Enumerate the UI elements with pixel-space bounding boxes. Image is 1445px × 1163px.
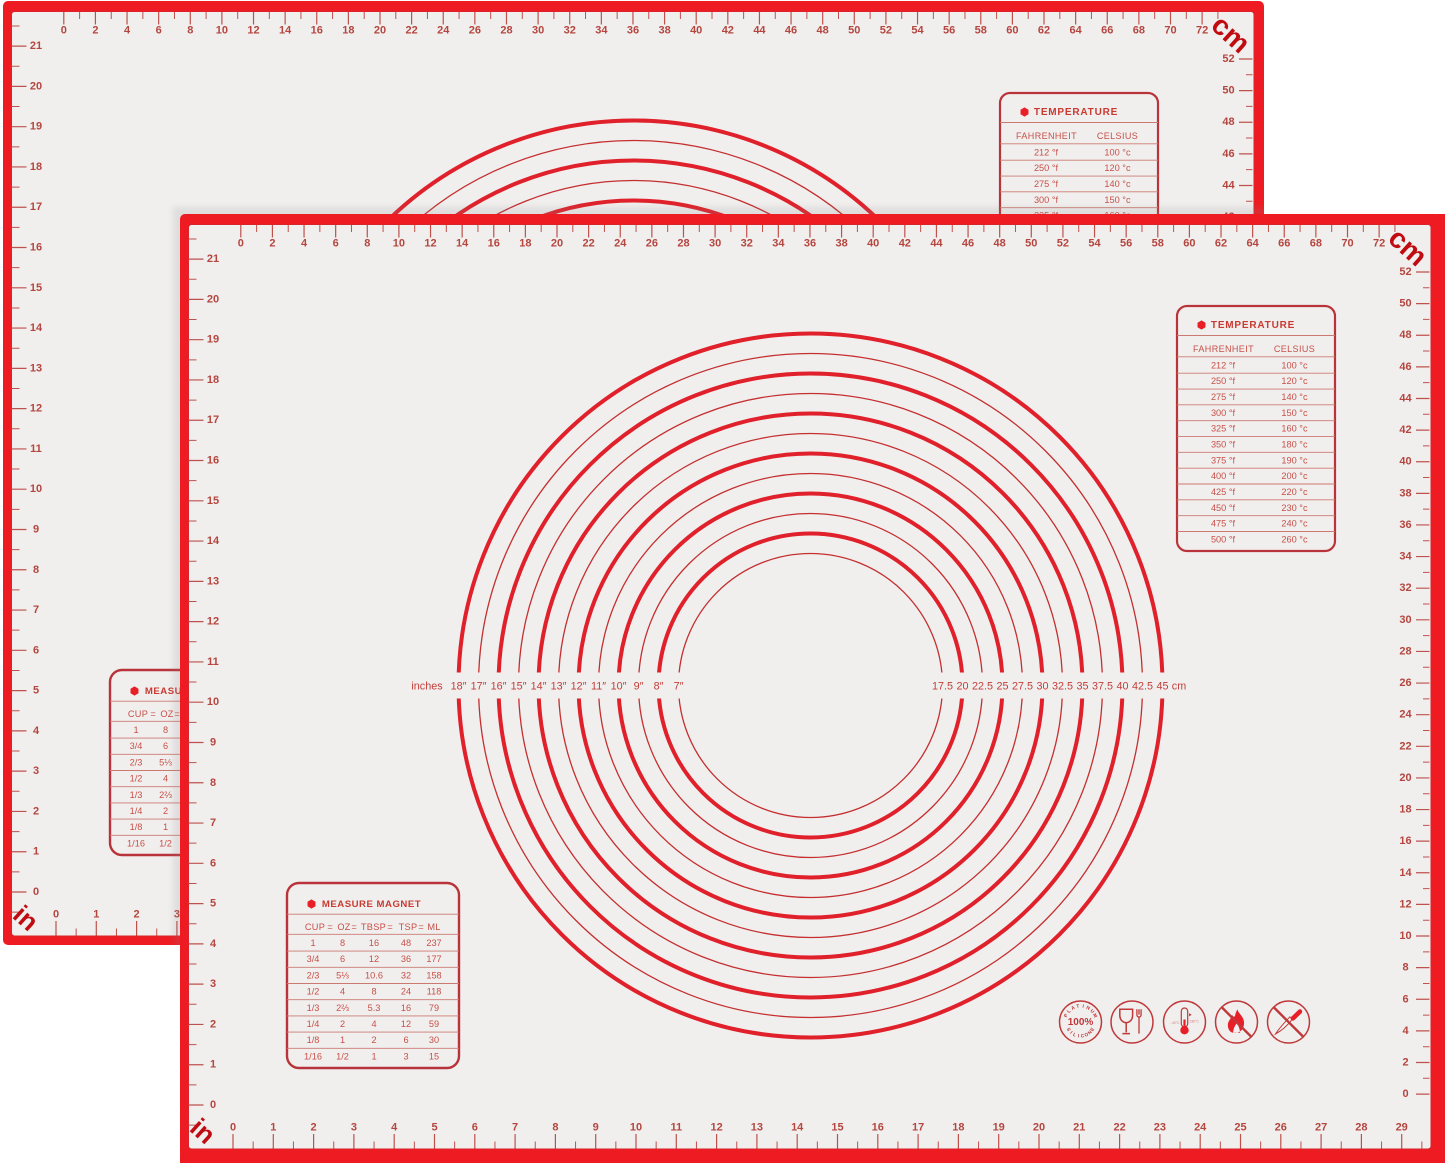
svg-text:37.5: 37.5 — [1092, 681, 1113, 693]
svg-text:5: 5 — [33, 685, 39, 697]
svg-text:62: 62 — [1038, 25, 1050, 37]
svg-text:28: 28 — [1399, 645, 1411, 657]
svg-text:64: 64 — [1247, 238, 1260, 250]
svg-text:52: 52 — [1057, 238, 1069, 250]
svg-text:66: 66 — [1101, 25, 1113, 37]
svg-text:230°C: 230°C — [1190, 1020, 1200, 1024]
svg-text:12: 12 — [1399, 898, 1411, 910]
svg-text:32: 32 — [1399, 582, 1411, 594]
svg-text:6: 6 — [1402, 993, 1408, 1005]
svg-text:42.5: 42.5 — [1132, 681, 1153, 693]
svg-text:27.5: 27.5 — [1012, 681, 1033, 693]
svg-text:2/3: 2/3 — [130, 757, 143, 767]
svg-text:15: 15 — [429, 1051, 439, 1061]
svg-text:180 °c: 180 °c — [1281, 439, 1308, 449]
svg-text:42: 42 — [722, 25, 734, 37]
svg-text:2: 2 — [210, 1018, 216, 1030]
svg-text:9: 9 — [210, 736, 216, 748]
svg-text:48: 48 — [817, 25, 829, 37]
svg-text:58: 58 — [1152, 238, 1164, 250]
svg-text:1/8: 1/8 — [130, 822, 143, 832]
svg-text:200 °c: 200 °c — [1281, 471, 1308, 481]
svg-text:325 °f: 325 °f — [1211, 424, 1236, 434]
svg-text:20: 20 — [374, 25, 386, 37]
svg-text:2: 2 — [92, 25, 98, 37]
svg-text:100 °c: 100 °c — [1104, 147, 1131, 157]
svg-text:17″: 17″ — [471, 681, 487, 693]
svg-text:FAHRENHEIT: FAHRENHEIT — [1016, 131, 1077, 141]
svg-text:17: 17 — [912, 1122, 924, 1134]
svg-text:150 °c: 150 °c — [1281, 408, 1308, 418]
svg-text:11: 11 — [30, 443, 42, 455]
svg-text:0: 0 — [33, 886, 39, 898]
svg-text:30: 30 — [709, 238, 721, 250]
svg-text:1: 1 — [340, 1035, 345, 1045]
svg-text:3: 3 — [351, 1122, 357, 1134]
svg-text:0: 0 — [61, 25, 67, 37]
svg-text:212 °f: 212 °f — [1211, 360, 1236, 370]
svg-text:237: 237 — [426, 938, 441, 948]
svg-text:22.5: 22.5 — [972, 681, 993, 693]
svg-text:450 °f: 450 °f — [1211, 503, 1236, 513]
svg-text:54: 54 — [1088, 238, 1101, 250]
svg-text:10: 10 — [30, 483, 42, 495]
svg-text:400 °f: 400 °f — [1211, 471, 1236, 481]
svg-text:6: 6 — [33, 644, 39, 656]
svg-text:0: 0 — [210, 1099, 216, 1111]
svg-text:14: 14 — [279, 25, 292, 37]
svg-text:70: 70 — [1341, 238, 1353, 250]
svg-text:58: 58 — [975, 25, 987, 37]
svg-text:160 °c: 160 °c — [1281, 424, 1308, 434]
svg-text:12: 12 — [247, 25, 259, 37]
svg-text:28: 28 — [500, 25, 512, 37]
svg-text:1: 1 — [371, 1051, 376, 1061]
svg-text:30: 30 — [1399, 614, 1411, 626]
svg-text:177: 177 — [426, 954, 441, 964]
svg-text:10.6: 10.6 — [365, 970, 383, 980]
svg-text:22: 22 — [405, 25, 417, 37]
svg-text:CELSIUS: CELSIUS — [1274, 344, 1315, 354]
svg-text:13: 13 — [207, 575, 219, 587]
svg-text:8: 8 — [33, 564, 39, 576]
svg-text:8: 8 — [1402, 962, 1408, 974]
svg-text:50: 50 — [1222, 85, 1234, 97]
svg-text:20: 20 — [30, 80, 42, 92]
svg-text:27: 27 — [1315, 1122, 1327, 1134]
svg-text:16: 16 — [207, 455, 219, 467]
svg-text:38: 38 — [1399, 487, 1411, 499]
svg-text:2: 2 — [163, 806, 168, 816]
svg-text:8: 8 — [552, 1122, 558, 1134]
svg-text:44: 44 — [1222, 179, 1235, 191]
svg-text:220 °c: 220 °c — [1281, 487, 1308, 497]
svg-text:25: 25 — [1234, 1122, 1246, 1134]
svg-text:68: 68 — [1310, 238, 1322, 250]
svg-text:8: 8 — [187, 25, 193, 37]
svg-text:38: 38 — [835, 238, 847, 250]
svg-text:66: 66 — [1278, 238, 1290, 250]
svg-text:16: 16 — [30, 242, 42, 254]
svg-text:16″: 16″ — [491, 681, 507, 693]
svg-text:158: 158 — [426, 970, 441, 980]
svg-text:240 °c: 240 °c — [1281, 519, 1308, 529]
svg-text:32: 32 — [741, 238, 753, 250]
svg-text:17: 17 — [207, 414, 219, 426]
svg-text:16: 16 — [872, 1122, 884, 1134]
svg-text:8″: 8″ — [654, 681, 664, 693]
svg-text:350 °f: 350 °f — [1211, 439, 1236, 449]
svg-text:12: 12 — [710, 1122, 722, 1134]
svg-text:100 °c: 100 °c — [1281, 360, 1308, 370]
svg-text:7: 7 — [210, 817, 216, 829]
svg-text:0: 0 — [238, 238, 244, 250]
svg-text:1: 1 — [163, 822, 168, 832]
svg-text:1/8: 1/8 — [307, 1035, 320, 1045]
svg-text:34: 34 — [1399, 551, 1412, 563]
svg-text:10: 10 — [216, 25, 228, 37]
svg-text:1: 1 — [310, 938, 315, 948]
svg-text:500 °f: 500 °f — [1211, 534, 1236, 544]
svg-text:4: 4 — [1402, 1025, 1409, 1037]
svg-text:4: 4 — [163, 774, 168, 784]
svg-text:1/2: 1/2 — [130, 774, 143, 784]
svg-text:4: 4 — [124, 25, 131, 37]
svg-text:1/3: 1/3 — [130, 790, 143, 800]
svg-text:10: 10 — [393, 238, 405, 250]
svg-text:3/4: 3/4 — [130, 741, 143, 751]
svg-text:1: 1 — [33, 846, 39, 858]
svg-text:46: 46 — [785, 25, 797, 37]
svg-text:24: 24 — [1194, 1122, 1207, 1134]
svg-text:TBSP: TBSP — [361, 922, 386, 932]
svg-text:230 °c: 230 °c — [1281, 503, 1308, 513]
svg-text:2/3: 2/3 — [307, 970, 320, 980]
svg-text:48: 48 — [1222, 116, 1234, 128]
svg-text:15″: 15″ — [511, 681, 527, 693]
svg-text:36: 36 — [804, 238, 816, 250]
svg-text:2⅔: 2⅔ — [336, 1003, 349, 1013]
svg-text:275 °f: 275 °f — [1034, 179, 1059, 189]
svg-text:10: 10 — [1399, 930, 1411, 942]
svg-text:14: 14 — [456, 238, 469, 250]
svg-text:26: 26 — [1399, 677, 1411, 689]
svg-text:MEASURE MAGNET: MEASURE MAGNET — [322, 899, 421, 910]
svg-text:32: 32 — [564, 25, 576, 37]
svg-text:10: 10 — [630, 1122, 642, 1134]
svg-text:50: 50 — [848, 25, 860, 37]
svg-text:2: 2 — [1402, 1057, 1408, 1069]
svg-text:5⅓: 5⅓ — [336, 970, 349, 980]
svg-text:12: 12 — [369, 954, 379, 964]
svg-text:36: 36 — [401, 954, 411, 964]
svg-text:48: 48 — [994, 238, 1006, 250]
svg-text:52: 52 — [880, 25, 892, 37]
svg-text:56: 56 — [1120, 238, 1132, 250]
svg-text:118: 118 — [427, 987, 442, 997]
svg-text:5.3: 5.3 — [368, 1003, 381, 1013]
svg-text:7: 7 — [33, 604, 39, 616]
svg-text:6: 6 — [403, 1035, 408, 1045]
svg-text:5: 5 — [210, 898, 216, 910]
svg-text:25: 25 — [996, 681, 1008, 693]
svg-text:38: 38 — [658, 25, 670, 37]
svg-text:68: 68 — [1133, 25, 1145, 37]
svg-text:48: 48 — [1399, 329, 1411, 341]
svg-text:260 °c: 260 °c — [1281, 534, 1308, 544]
svg-text:36: 36 — [1399, 519, 1411, 531]
svg-text:15: 15 — [831, 1122, 843, 1134]
svg-text:46: 46 — [1222, 148, 1234, 160]
svg-text:3: 3 — [210, 978, 216, 990]
svg-text:19: 19 — [207, 334, 219, 346]
svg-text:250 °f: 250 °f — [1034, 163, 1059, 173]
svg-text:3: 3 — [403, 1051, 408, 1061]
svg-text:32: 32 — [401, 970, 411, 980]
svg-text:11″: 11″ — [591, 681, 606, 693]
svg-text:14: 14 — [1399, 867, 1412, 879]
svg-text:2: 2 — [134, 909, 140, 921]
svg-text:24: 24 — [401, 987, 411, 997]
svg-text:13″: 13″ — [551, 681, 567, 693]
svg-text:24: 24 — [437, 25, 450, 37]
svg-text:18: 18 — [519, 238, 531, 250]
svg-text:20: 20 — [207, 293, 219, 305]
svg-text:40: 40 — [690, 25, 702, 37]
svg-text:100%: 100% — [1068, 1017, 1094, 1028]
svg-text:475 °f: 475 °f — [1211, 519, 1236, 529]
svg-text:28: 28 — [1355, 1122, 1367, 1134]
svg-text:1/16: 1/16 — [304, 1051, 322, 1061]
svg-text:=: = — [387, 922, 392, 932]
svg-text:140 °c: 140 °c — [1281, 392, 1308, 402]
svg-text:4: 4 — [340, 987, 345, 997]
svg-text:24: 24 — [614, 238, 627, 250]
svg-text:7″: 7″ — [674, 681, 684, 693]
svg-text:10: 10 — [207, 696, 219, 708]
svg-text:30: 30 — [532, 25, 544, 37]
svg-text:19: 19 — [30, 121, 42, 133]
svg-text:4: 4 — [33, 725, 40, 737]
svg-text:18: 18 — [30, 161, 42, 173]
svg-text:inches: inches — [411, 681, 443, 693]
svg-text:1/2: 1/2 — [307, 987, 320, 997]
svg-text:62: 62 — [1215, 238, 1227, 250]
svg-text:OZ: OZ — [160, 709, 173, 719]
svg-text:11: 11 — [670, 1122, 682, 1134]
svg-text:44: 44 — [1399, 392, 1412, 404]
svg-text:150 °c: 150 °c — [1104, 195, 1131, 205]
svg-text:300 °f: 300 °f — [1034, 195, 1059, 205]
svg-text:18: 18 — [342, 25, 354, 37]
svg-text:52: 52 — [1399, 266, 1411, 278]
svg-text:20: 20 — [1033, 1122, 1045, 1134]
svg-text:54: 54 — [911, 25, 924, 37]
svg-text:40: 40 — [867, 238, 879, 250]
svg-text:TEMPERATURE: TEMPERATURE — [1034, 107, 1118, 118]
svg-text:=: = — [150, 709, 155, 719]
svg-text:52: 52 — [1222, 53, 1234, 65]
svg-text:56: 56 — [943, 25, 955, 37]
svg-text:cm: cm — [1172, 681, 1186, 693]
svg-text:59: 59 — [429, 1019, 439, 1029]
svg-text:6: 6 — [163, 741, 168, 751]
svg-text:21: 21 — [1073, 1122, 1085, 1134]
svg-text:24: 24 — [1399, 709, 1412, 721]
svg-text:5: 5 — [431, 1122, 437, 1134]
svg-text:120 °c: 120 °c — [1281, 376, 1308, 386]
svg-text:16: 16 — [401, 1003, 411, 1013]
svg-text:13: 13 — [751, 1122, 763, 1134]
svg-text:34: 34 — [772, 238, 785, 250]
svg-text:45: 45 — [1156, 681, 1168, 693]
svg-text:2: 2 — [33, 805, 39, 817]
svg-text:18″: 18″ — [451, 681, 467, 693]
svg-text:2⅔: 2⅔ — [159, 790, 172, 800]
svg-text:15: 15 — [207, 495, 219, 507]
svg-text:14″: 14″ — [531, 681, 547, 693]
svg-text:8: 8 — [210, 777, 216, 789]
svg-text:10″: 10″ — [611, 681, 627, 693]
svg-text:60: 60 — [1006, 25, 1018, 37]
svg-text:12″: 12″ — [571, 681, 587, 693]
svg-text:11: 11 — [207, 656, 219, 668]
svg-text:0: 0 — [230, 1122, 236, 1134]
svg-text:21: 21 — [207, 253, 219, 265]
svg-text:6: 6 — [333, 238, 339, 250]
svg-text:42: 42 — [1399, 424, 1411, 436]
svg-text:2: 2 — [340, 1019, 345, 1029]
svg-text:40: 40 — [1399, 456, 1411, 468]
svg-text:TEMPERATURE: TEMPERATURE — [1211, 320, 1295, 331]
svg-text:375 °f: 375 °f — [1211, 455, 1236, 465]
svg-text:44: 44 — [753, 25, 766, 37]
svg-text:35: 35 — [1076, 681, 1088, 693]
svg-text:425 °f: 425 °f — [1211, 487, 1236, 497]
svg-text:20: 20 — [956, 681, 968, 693]
svg-text:12: 12 — [401, 1019, 411, 1029]
svg-text:20: 20 — [551, 238, 563, 250]
svg-text:9: 9 — [593, 1122, 599, 1134]
svg-text:79: 79 — [429, 1003, 439, 1013]
svg-text:275 °f: 275 °f — [1211, 392, 1236, 402]
svg-text:48: 48 — [401, 938, 411, 948]
svg-text:12: 12 — [207, 616, 219, 628]
svg-text:28: 28 — [677, 238, 689, 250]
svg-text:- 40°C: - 40°C — [1170, 1021, 1180, 1025]
svg-text:30: 30 — [429, 1035, 439, 1045]
svg-text:17: 17 — [30, 201, 42, 213]
svg-text:64: 64 — [1070, 25, 1083, 37]
svg-text:8: 8 — [371, 987, 376, 997]
svg-text:14: 14 — [791, 1122, 804, 1134]
svg-text:6: 6 — [340, 954, 345, 964]
svg-text:6: 6 — [472, 1122, 478, 1134]
svg-text:5⅓: 5⅓ — [159, 757, 172, 767]
svg-text:1/3: 1/3 — [307, 1003, 320, 1013]
svg-text:18: 18 — [1399, 804, 1411, 816]
svg-text:23: 23 — [1154, 1122, 1166, 1134]
svg-text:=: = — [418, 922, 423, 932]
svg-text:1: 1 — [133, 725, 138, 735]
svg-text:22: 22 — [1399, 740, 1411, 752]
svg-text:34: 34 — [595, 25, 608, 37]
svg-text:4: 4 — [210, 938, 217, 950]
svg-text:6: 6 — [156, 25, 162, 37]
svg-text:4: 4 — [391, 1122, 398, 1134]
svg-text:4: 4 — [371, 1019, 376, 1029]
svg-text:300 °f: 300 °f — [1211, 408, 1236, 418]
svg-text:CUP: CUP — [305, 922, 325, 932]
svg-text:16: 16 — [311, 25, 323, 37]
svg-text:70: 70 — [1164, 25, 1176, 37]
svg-text:1: 1 — [210, 1059, 216, 1071]
svg-text:16: 16 — [1399, 835, 1411, 847]
svg-text:14: 14 — [30, 322, 43, 334]
svg-text:44: 44 — [930, 238, 943, 250]
svg-text:9″: 9″ — [634, 681, 644, 693]
svg-text:OZ: OZ — [337, 922, 350, 932]
svg-text:26: 26 — [646, 238, 658, 250]
svg-text:2: 2 — [269, 238, 275, 250]
svg-text:12: 12 — [424, 238, 436, 250]
svg-text:26: 26 — [1275, 1122, 1287, 1134]
svg-text:1/2: 1/2 — [336, 1051, 349, 1061]
svg-text:0: 0 — [1402, 1088, 1408, 1100]
svg-text:26: 26 — [469, 25, 481, 37]
svg-text:32.5: 32.5 — [1052, 681, 1073, 693]
svg-text:15: 15 — [30, 282, 42, 294]
svg-text:212 °f: 212 °f — [1034, 147, 1059, 157]
svg-text:8: 8 — [364, 238, 370, 250]
svg-text:50: 50 — [1399, 298, 1411, 310]
svg-text:1/16: 1/16 — [127, 838, 145, 848]
svg-text:60: 60 — [1183, 238, 1195, 250]
svg-text:2: 2 — [371, 1035, 376, 1045]
svg-text:2: 2 — [311, 1122, 317, 1134]
svg-text:22: 22 — [1113, 1122, 1125, 1134]
svg-text:CUP: CUP — [128, 709, 148, 719]
svg-text:FAHRENHEIT: FAHRENHEIT — [1193, 344, 1254, 354]
svg-text:22: 22 — [582, 238, 594, 250]
svg-text:12: 12 — [30, 403, 42, 415]
svg-text:0: 0 — [53, 909, 59, 921]
svg-text:ML: ML — [427, 922, 440, 932]
svg-text:42: 42 — [899, 238, 911, 250]
svg-text:1/2: 1/2 — [159, 838, 172, 848]
svg-text:140 °c: 140 °c — [1104, 179, 1131, 189]
svg-text:14: 14 — [207, 535, 220, 547]
svg-text:1/4: 1/4 — [307, 1019, 320, 1029]
svg-text:30: 30 — [1036, 681, 1048, 693]
svg-text:=: = — [351, 922, 356, 932]
svg-text:16: 16 — [488, 238, 500, 250]
svg-text:4: 4 — [301, 238, 308, 250]
svg-text:9: 9 — [33, 523, 39, 535]
svg-text:250 °f: 250 °f — [1211, 376, 1236, 386]
svg-text:8: 8 — [340, 938, 345, 948]
svg-text:50: 50 — [1025, 238, 1037, 250]
svg-text:TSP: TSP — [399, 922, 418, 932]
svg-text:20: 20 — [1399, 772, 1411, 784]
svg-text:1: 1 — [93, 909, 99, 921]
svg-text:3/4: 3/4 — [307, 954, 320, 964]
svg-text:7: 7 — [512, 1122, 518, 1134]
svg-text:19: 19 — [993, 1122, 1005, 1134]
svg-text:=: = — [327, 922, 332, 932]
svg-text:13: 13 — [30, 362, 42, 374]
svg-text:17.5: 17.5 — [932, 681, 953, 693]
